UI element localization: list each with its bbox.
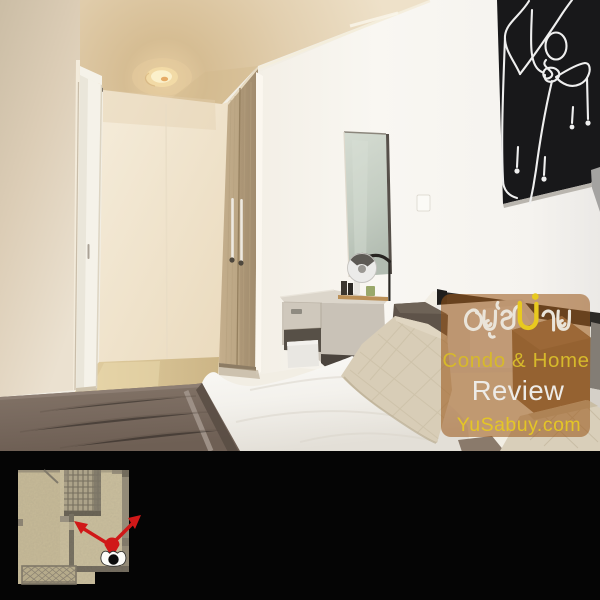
svg-text:Review: Review: [472, 375, 565, 406]
svg-text:YuSabuy.com: YuSabuy.com: [457, 414, 581, 436]
svg-text:Condo & Home: Condo & Home: [442, 349, 589, 372]
